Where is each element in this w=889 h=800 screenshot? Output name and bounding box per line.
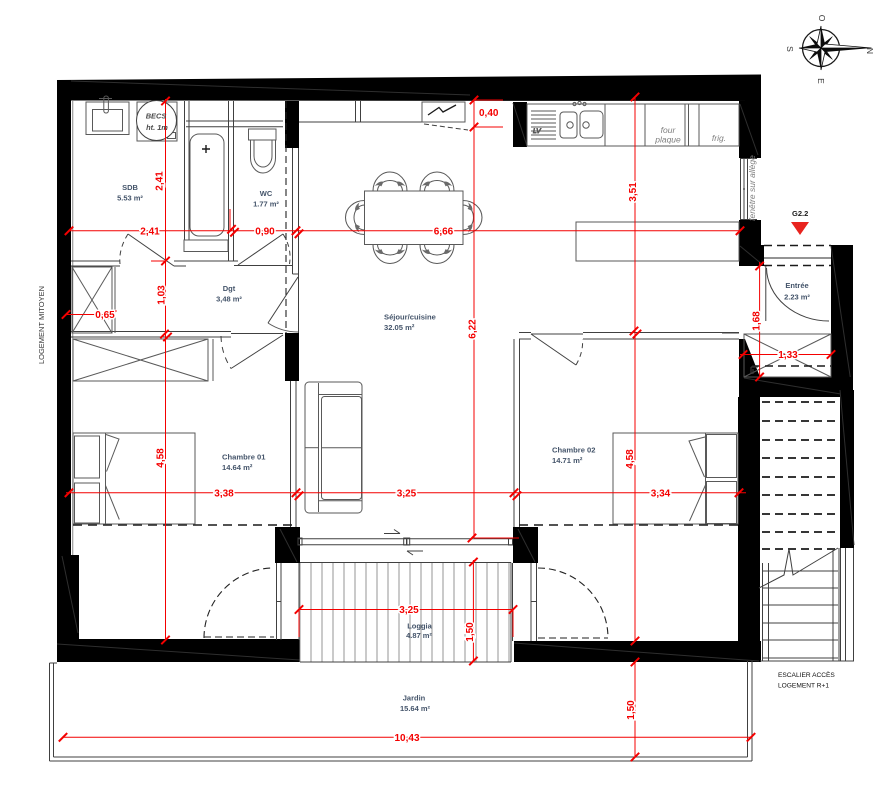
svg-text:1.77 m²: 1.77 m² [253, 200, 279, 209]
svg-text:Jardin: Jardin [403, 694, 426, 703]
svg-text:1,03: 1,03 [157, 285, 168, 305]
svg-text:G2.2: G2.2 [792, 209, 808, 218]
svg-text:3,38: 3,38 [214, 488, 234, 499]
svg-text:3,25: 3,25 [399, 605, 419, 616]
svg-text:3,34: 3,34 [651, 488, 671, 499]
svg-text:3,25: 3,25 [397, 488, 417, 499]
svg-text:Séjour/cuisine: Séjour/cuisine [384, 313, 436, 322]
svg-text:4.87 m²: 4.87 m² [406, 631, 432, 640]
svg-text:14.64 m²: 14.64 m² [222, 463, 253, 472]
svg-text:14.71 m²: 14.71 m² [552, 456, 583, 465]
svg-text:ESCALIER ACCÈS: ESCALIER ACCÈS [778, 670, 835, 679]
svg-text:2,41: 2,41 [140, 227, 160, 238]
svg-text:Dgt: Dgt [223, 284, 236, 293]
svg-text:LV: LV [533, 128, 541, 135]
svg-text:1,33: 1,33 [778, 350, 798, 361]
svg-text:32.05 m²: 32.05 m² [384, 323, 415, 332]
svg-text:E: E [816, 78, 826, 84]
svg-text:3,51: 3,51 [628, 182, 639, 202]
svg-text:4,58: 4,58 [156, 448, 167, 468]
svg-text:LOGEMENT MITOYEN: LOGEMENT MITOYEN [37, 286, 46, 364]
svg-text:Chambre 01: Chambre 01 [222, 453, 266, 462]
svg-text:2,41: 2,41 [155, 171, 166, 191]
svg-text:6,22: 6,22 [468, 319, 479, 339]
svg-text:frig.: frig. [712, 133, 726, 143]
svg-text:O: O [817, 15, 827, 22]
svg-text:2.23 m²: 2.23 m² [784, 293, 810, 302]
svg-text:5.53 m²: 5.53 m² [117, 194, 143, 203]
svg-text:BECS: BECS [146, 112, 167, 121]
svg-text:Loggia: Loggia [407, 622, 432, 631]
svg-text:Entrée: Entrée [785, 281, 808, 290]
svg-text:plaque: plaque [654, 135, 681, 145]
svg-text:10,43: 10,43 [394, 733, 419, 744]
svg-text:WC: WC [260, 189, 273, 198]
svg-text:4,58: 4,58 [625, 449, 636, 469]
svg-text:0,90: 0,90 [255, 227, 275, 238]
svg-text:1,50: 1,50 [626, 700, 637, 720]
svg-text:fenêtre sur allège: fenêtre sur allège [747, 155, 757, 221]
svg-text:0,65: 0,65 [95, 310, 115, 321]
svg-text:Chambre 02: Chambre 02 [552, 446, 595, 455]
svg-text:1,68: 1,68 [752, 311, 763, 331]
svg-text:0,40: 0,40 [479, 108, 499, 119]
svg-text:SDB: SDB [122, 183, 138, 192]
svg-text:N: N [865, 48, 875, 54]
svg-text:S: S [785, 46, 795, 52]
svg-text:ht. 1m: ht. 1m [146, 123, 168, 132]
svg-text:LOGEMENT R+1: LOGEMENT R+1 [778, 683, 829, 690]
svg-text:6,66: 6,66 [434, 227, 454, 238]
svg-text:3,48 m²: 3,48 m² [216, 295, 242, 304]
svg-text:four: four [661, 125, 677, 135]
svg-text:15.64 m²: 15.64 m² [400, 704, 431, 713]
svg-text:1,50: 1,50 [465, 622, 476, 642]
